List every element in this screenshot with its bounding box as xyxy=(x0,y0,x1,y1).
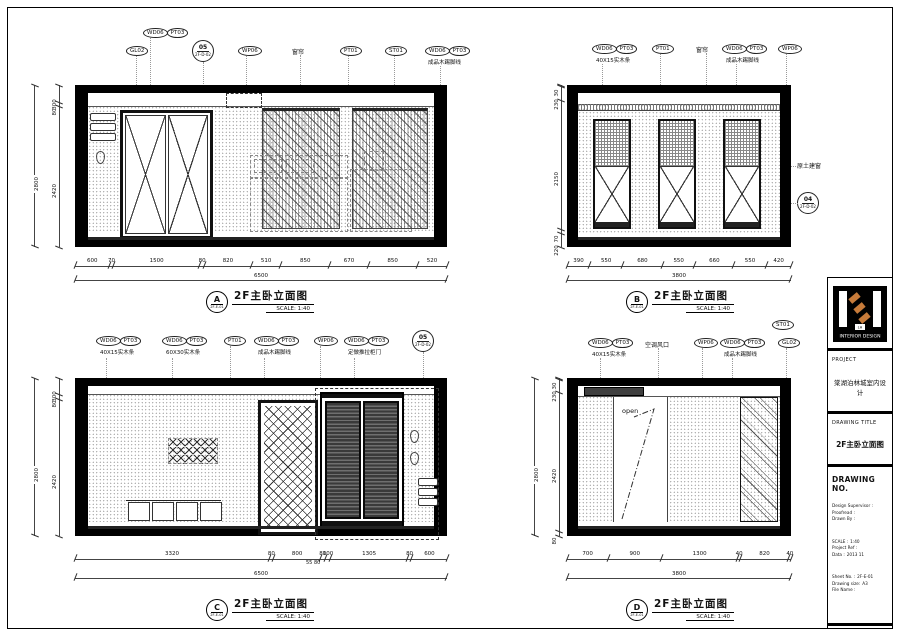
dim-segment: 670 xyxy=(330,252,369,266)
elevation-scale: SCALE: 1:40 xyxy=(686,305,734,313)
original-window-note: 原土建窗 xyxy=(797,161,821,170)
leader-line xyxy=(320,346,321,378)
dresser-top-line xyxy=(126,500,221,501)
skirting-note: 成品木踢脚线 xyxy=(724,350,757,358)
material-tag-st01: ST01 xyxy=(385,46,407,56)
dim-segment: 820 xyxy=(204,252,251,266)
dim-segment: 2150 xyxy=(550,101,561,230)
skirting-line xyxy=(88,526,434,529)
shelf-bar xyxy=(90,113,116,121)
elevation-letter: D xyxy=(631,603,644,613)
people-fields: Design Supervisor :Proofread :Drawn By : xyxy=(832,503,888,523)
curtain-box xyxy=(226,93,262,108)
leader-line xyxy=(264,358,265,378)
callout-wd-pt: WD06 PT03 xyxy=(344,336,389,346)
detail-bubble-05: 05 2F-D-02 xyxy=(192,40,214,62)
material-tag-pt01: PT01 xyxy=(340,46,362,56)
material-tag: WD06 xyxy=(344,336,369,346)
dim-segment: 2420 xyxy=(548,393,559,532)
dim-segment: 300 xyxy=(48,85,59,102)
drawing-title-label: DRAWING TITLE xyxy=(832,420,888,426)
skirting-note: 成品木踢脚线 xyxy=(258,348,291,356)
material-tag: WD06 xyxy=(162,336,187,346)
dim-segment: 510 xyxy=(252,252,281,266)
leader-line xyxy=(706,53,707,85)
material-tag: PT03 xyxy=(368,336,390,346)
dim-segment: 550 xyxy=(734,252,766,266)
material-tag-pt01: PT01 xyxy=(652,44,674,54)
skirting-line xyxy=(578,237,780,240)
elevation-sheet-ref: 2F-E-01 xyxy=(630,305,643,310)
material-tag: WD06 xyxy=(592,44,617,54)
dim-segment: 2420 xyxy=(48,107,59,247)
dim-segment: 3320 xyxy=(75,545,269,559)
door-swing-line xyxy=(614,397,667,522)
room-outline: open xyxy=(567,378,791,536)
elevation-name: 2F主卧立面图 xyxy=(652,596,734,613)
material-tag: PT03 xyxy=(612,338,634,348)
window-sheer xyxy=(660,121,694,167)
dim-segment: 1300 xyxy=(661,545,738,559)
bed-dashed xyxy=(250,177,348,232)
detail-sheet-ref: 2F-D-02 xyxy=(195,52,211,58)
dim-segment: 680 xyxy=(622,252,662,266)
open-label: open xyxy=(622,407,638,415)
skirting-line xyxy=(578,526,780,529)
horizontal-total-dim: 3800 xyxy=(567,566,791,579)
material-tag-wp06: WP06 xyxy=(314,336,338,346)
detail-number: 05 xyxy=(417,334,429,342)
dim-segment: 550 xyxy=(590,252,622,266)
dim-segment: 700 xyxy=(567,545,608,559)
leader-line xyxy=(791,166,798,167)
window-glass xyxy=(725,166,759,222)
curtain-track-band xyxy=(578,104,780,111)
leader-line xyxy=(702,348,703,378)
meta-fields: SCALE :1:40Project Ref :Data :2013 11 xyxy=(832,539,888,559)
elevation-letter: A xyxy=(211,295,223,305)
leader-line xyxy=(354,358,355,378)
material-tag: WD06 xyxy=(96,336,121,346)
window-sill xyxy=(660,222,694,227)
door-leaf xyxy=(168,115,209,234)
company-logo: LH INTERIOR DESIGN xyxy=(833,286,887,342)
leader-line xyxy=(732,358,733,378)
material-tag: WD06 xyxy=(425,46,450,56)
callout-wd-pt: WD06 PT03 xyxy=(592,44,637,54)
dim-segment: 800 xyxy=(274,545,321,559)
elevation-name: 2F主卧立面图 xyxy=(232,596,314,613)
mirror-panel xyxy=(740,397,778,522)
divider xyxy=(828,464,892,467)
horizontal-total-dim: 3800 xyxy=(567,268,791,281)
dim-segment: 820 xyxy=(740,545,788,559)
elevation-name: 2F主卧立面图 xyxy=(232,288,314,305)
leader-line xyxy=(602,64,603,85)
material-tag: WD06 xyxy=(720,338,745,348)
vertical-dims: 30230242080 xyxy=(548,378,560,536)
dim-segment: 1500 xyxy=(114,252,200,266)
horizontal-dims: 60070150080820510850670850520 xyxy=(75,252,447,267)
shelf-bar xyxy=(418,488,438,496)
drawing-title: 2F主卧立面图 xyxy=(832,439,888,450)
material-tag: PT03 xyxy=(186,336,208,346)
pillow-dashed xyxy=(254,159,282,173)
project-name: 棠湖泊林城室内设计 xyxy=(832,377,888,397)
leader-line xyxy=(423,352,424,378)
dim-segment: 220 xyxy=(550,234,561,247)
dim-segment: 600 xyxy=(75,252,110,266)
material-tag-wp06: WP06 xyxy=(238,46,262,56)
dim-segment: 900 xyxy=(608,545,661,559)
lamp-dashed xyxy=(364,151,384,171)
window-sill xyxy=(595,222,629,227)
horizontal-total-dim: 6500 xyxy=(75,268,447,281)
material-tag-wp06: WP06 xyxy=(778,44,802,54)
material-tag: PT03 xyxy=(278,336,300,346)
drawer xyxy=(128,502,150,521)
field-row: Data :2013 11 xyxy=(832,552,888,559)
leader-line xyxy=(736,64,737,85)
sliding-door-note: 定做推拉柜门 xyxy=(348,348,381,356)
detail-sheet-ref: 2F-D-02 xyxy=(800,204,816,210)
window-sheer xyxy=(725,121,759,167)
elevation-sheet-ref: 2F-E-01 xyxy=(210,305,223,310)
logo-mark: LH xyxy=(858,326,863,330)
divider xyxy=(828,411,892,414)
dim-segment: 40 xyxy=(789,545,791,559)
window-sill xyxy=(725,222,759,227)
pillow-dashed xyxy=(286,159,314,173)
elevation-key-bubble: D 2F-E-01 xyxy=(626,599,648,621)
elevation-key-bubble: A 2F-E-01 xyxy=(206,291,228,313)
divider xyxy=(828,623,892,626)
material-tag: PT03 xyxy=(616,44,638,54)
material-tag: PT03 xyxy=(746,44,768,54)
window xyxy=(593,119,631,229)
file-fields: Sheet No. :2F-E-01Drawing size:A3File Na… xyxy=(832,574,888,594)
wardrobe xyxy=(320,392,404,529)
material-tag: WD06 xyxy=(143,28,168,38)
logo-text: INTERIOR DESIGN xyxy=(839,334,880,340)
wall-art-dashed xyxy=(168,438,218,464)
drawing-no-label: DRAWING NO. xyxy=(832,475,888,493)
elevation-name: 2F主卧立面图 xyxy=(652,288,734,305)
leader-line xyxy=(172,358,173,378)
field-row: Drawn By : xyxy=(832,516,888,523)
leader-line xyxy=(440,66,441,85)
dim-segment: 850 xyxy=(368,252,417,266)
dim-segment: 2420 xyxy=(48,399,59,536)
dim-segment: 80 xyxy=(548,531,559,536)
detail-bubble-05: 05 2F-D-02 xyxy=(412,330,434,352)
ac-vent xyxy=(584,387,644,396)
horizontal-dims: 70090013004082040 xyxy=(567,545,791,560)
material-tag: PT03 xyxy=(744,338,766,348)
dim-segment: 600 xyxy=(412,545,447,559)
material-tag: WD06 xyxy=(588,338,613,348)
vertical-total-dim: 2800 xyxy=(34,85,45,247)
skirting-line xyxy=(88,237,434,240)
callout-wd-pt: WD06 PT03 xyxy=(722,44,767,54)
callout-wd-pt: WD06 PT03 xyxy=(720,338,765,348)
dim-segment: 390 xyxy=(567,252,590,266)
room-outline xyxy=(567,85,791,247)
vertical-dims: 30230215070220 xyxy=(550,85,562,247)
callout-wd-pt: WD06 PT03 xyxy=(96,336,141,346)
wood-strip-note: 40X15实木条 xyxy=(596,56,630,64)
window-sheer xyxy=(595,121,629,167)
project-label: PROJECT xyxy=(832,357,888,363)
drawer xyxy=(176,502,198,521)
leader-line xyxy=(660,54,661,85)
leader-line xyxy=(300,55,301,85)
drawer xyxy=(152,502,174,521)
vertical-total-dim: 2800 xyxy=(534,378,545,536)
shelf-bar xyxy=(90,133,116,141)
elevation-sheet-ref: 2F-E-01 xyxy=(630,613,643,618)
elevation-letter: B xyxy=(631,295,643,305)
room-outline xyxy=(75,85,447,247)
skirting-note: 成品木踢脚线 xyxy=(428,58,461,66)
horizontal-dims: 33208080080100130580600 xyxy=(75,545,447,560)
horizontal-dims: 390550680550660550420 xyxy=(567,252,791,267)
dim-segment: 520 xyxy=(417,252,447,266)
callout-wd-pt: WD06 PT03 xyxy=(143,28,188,38)
door-leaf xyxy=(125,115,166,234)
elevation-key-bubble: C 2F-E-01 xyxy=(206,599,228,621)
vertical-dims: 300802420 xyxy=(48,378,60,536)
material-tag: PT03 xyxy=(120,336,142,346)
divider xyxy=(828,348,892,351)
elevation-title: B 2F-E-01 2F主卧立面图 SCALE: 1:40 xyxy=(585,288,775,313)
open-door: open xyxy=(613,397,668,522)
material-tag-st01: ST01 xyxy=(772,320,794,330)
leader-line xyxy=(786,54,787,85)
door-lattice xyxy=(264,406,312,529)
material-tag-wp06: WP06 xyxy=(694,338,718,348)
sliding-door-panel xyxy=(325,401,361,519)
callout-wd-pt: WD06 PT03 xyxy=(254,336,299,346)
shelf-bar xyxy=(418,498,438,506)
leader-line xyxy=(136,56,137,85)
elevation-sheet-ref: 2F-E-01 xyxy=(210,613,223,618)
shelf-stack xyxy=(418,478,438,508)
material-tag-gl02: GL02 xyxy=(778,338,800,348)
dim-segment: 420 xyxy=(766,252,791,266)
nightstand-dashed xyxy=(350,169,412,232)
dim-segment: 1305 xyxy=(331,545,407,559)
drawing-sheet: WD06 PT03 GL02 05 2F-D-02 WP06 窗帘 PT01 S… xyxy=(0,0,900,636)
material-tag: WD06 xyxy=(254,336,279,346)
detail-number: 04 xyxy=(802,196,814,204)
material-tag: PT03 xyxy=(167,28,189,38)
shelf-bar xyxy=(418,478,438,486)
elevation-scale: SCALE: 1:40 xyxy=(266,613,314,621)
horizontal-total-dim: 6500 xyxy=(75,566,447,579)
leader-line xyxy=(786,348,787,378)
detail-sheet-ref: 2F-D-02 xyxy=(415,342,431,348)
leader-line xyxy=(150,38,151,85)
leader-line xyxy=(348,56,349,85)
leader-line xyxy=(106,358,107,378)
vertical-total-dim: 2800 xyxy=(34,378,45,536)
lattice-door xyxy=(258,400,318,535)
callout-wd-pt: WD06 PT03 xyxy=(162,336,207,346)
wood-strip-note: 60X30实木条 xyxy=(166,348,200,356)
room-outline xyxy=(75,378,447,536)
window-glass xyxy=(595,166,629,222)
dresser-drawers xyxy=(128,502,222,521)
callout-wd-pt: WD06 PT03 xyxy=(425,46,470,56)
window xyxy=(658,119,696,229)
drawer xyxy=(200,502,222,521)
dim-segment: 660 xyxy=(695,252,734,266)
leader-line xyxy=(230,346,231,378)
leader-line xyxy=(246,56,247,85)
elevation-scale: SCALE: 1:40 xyxy=(686,613,734,621)
dim-segment: 550 xyxy=(662,252,694,266)
wood-strip-note: 40X15实木条 xyxy=(592,350,626,358)
callout-wd-pt: WD06 PT03 xyxy=(588,338,633,348)
leader-line xyxy=(791,203,798,204)
detail-number: 05 xyxy=(197,44,209,52)
leader-line xyxy=(658,348,659,378)
leader-line xyxy=(394,56,395,85)
shelf-stack xyxy=(90,113,116,143)
elevation-title: A 2F-E-01 2F主卧立面图 SCALE: 1:40 xyxy=(140,288,380,313)
material-tag-gl02: GL02 xyxy=(126,46,148,56)
sliding-door-panel xyxy=(363,401,399,519)
field-row: File Name : xyxy=(832,587,888,594)
ac-vent-note: 空调风口 xyxy=(645,340,669,349)
title-block: LH INTERIOR DESIGN PROJECT 棠湖泊林城室内设计 DRA… xyxy=(827,277,893,629)
elevation-key-bubble: B 2F-E-01 xyxy=(626,291,648,313)
elevation-title: C 2F-E-01 2F主卧立面图 SCALE: 1:40 xyxy=(140,596,380,621)
material-tag: PT03 xyxy=(449,46,471,56)
material-tag: WD06 xyxy=(722,44,747,54)
curtain-note: 窗帘 xyxy=(292,47,304,56)
shelf-bar xyxy=(90,123,116,131)
elevation-title: D 2F-E-01 2F主卧立面图 SCALE: 1:40 xyxy=(585,596,775,621)
window-glass xyxy=(660,166,694,222)
elevation-scale: SCALE: 1:40 xyxy=(266,305,314,313)
glazed-double-door xyxy=(120,110,213,239)
detail-bubble-04: 04 2F-D-02 xyxy=(797,192,819,214)
material-tag-pt01: PT01 xyxy=(224,336,246,346)
skirting-note: 成品木踢脚线 xyxy=(726,56,759,64)
leader-line xyxy=(600,358,601,378)
elevation-letter: C xyxy=(211,603,223,613)
wood-strip-note: 40X15实木条 xyxy=(100,348,134,356)
window xyxy=(723,119,761,229)
vertical-dims: 300802420 xyxy=(48,85,60,247)
wardrobe-top-rail xyxy=(322,394,402,398)
dim-segment: 850 xyxy=(281,252,330,266)
